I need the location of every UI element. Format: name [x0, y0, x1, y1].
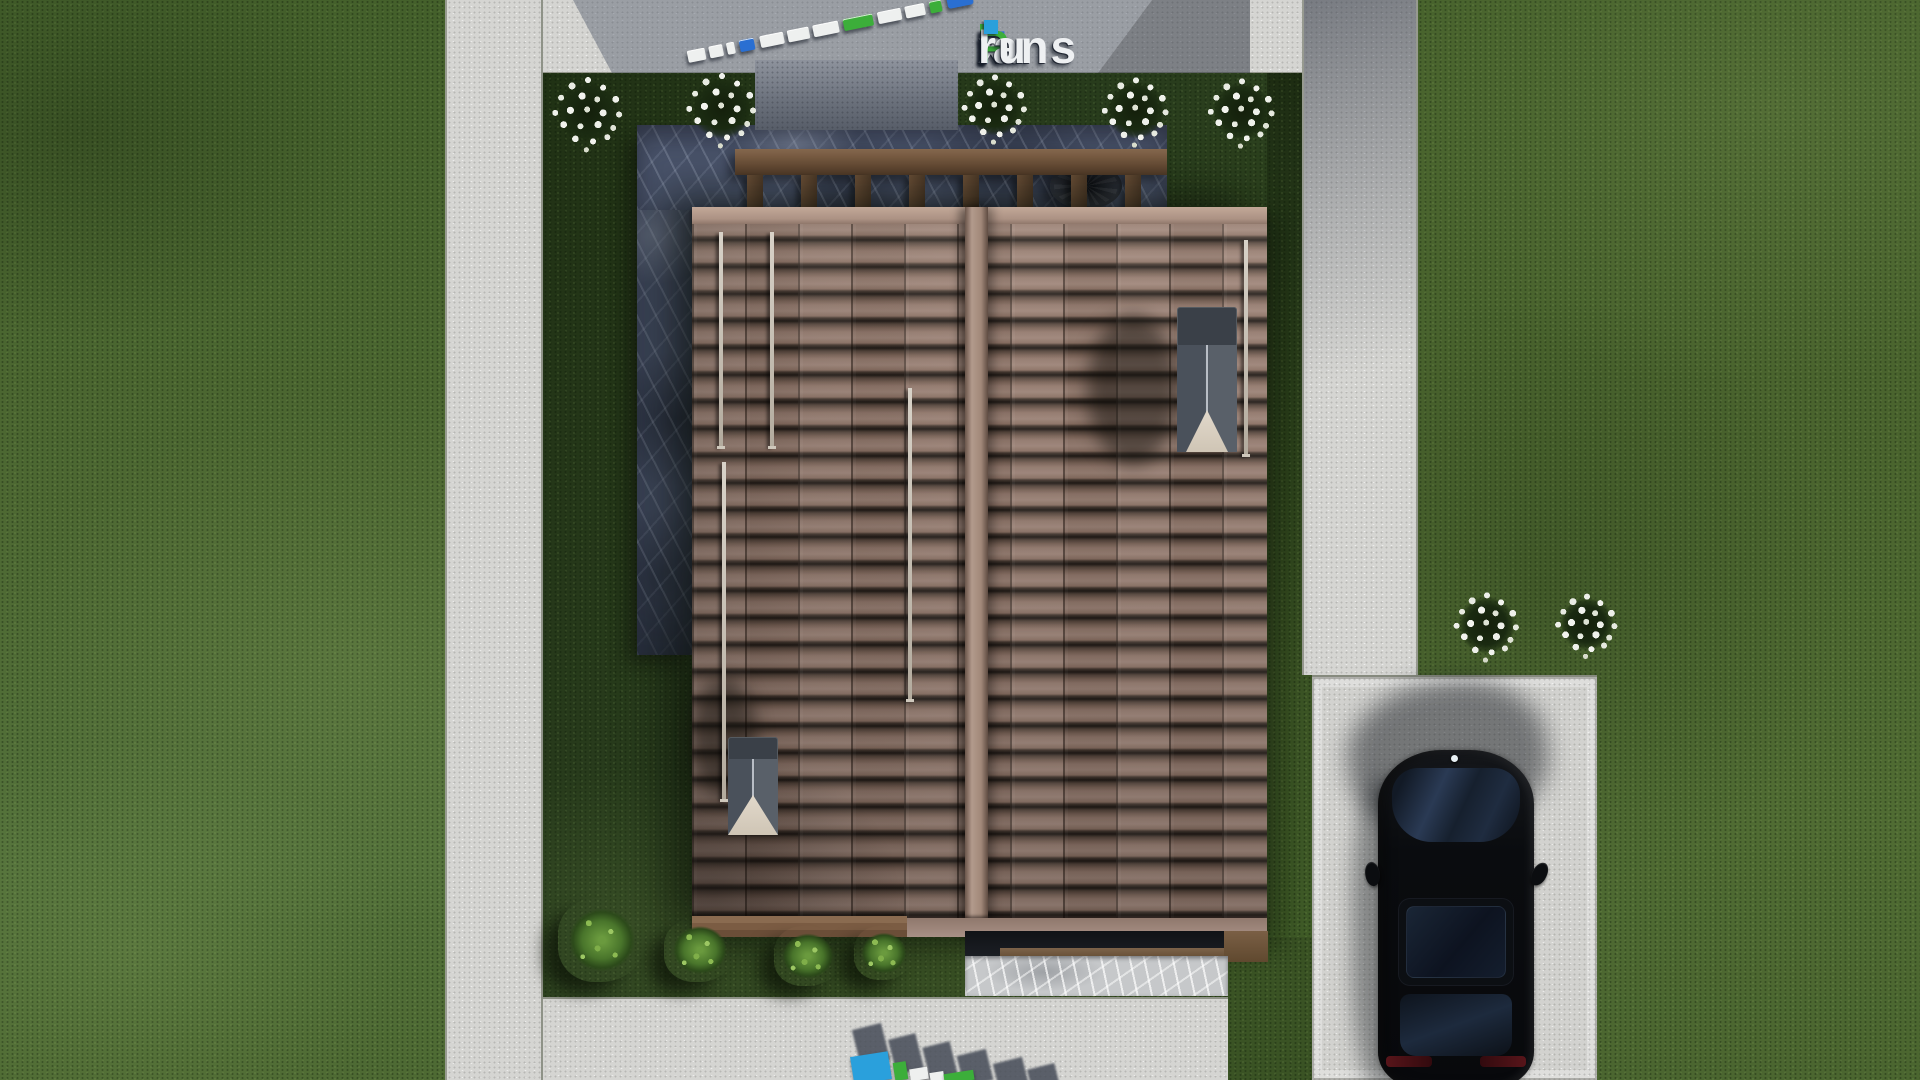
stone-terrace: [965, 956, 1228, 996]
watermark-dash: [687, 48, 707, 63]
pergola-beam: [735, 149, 1167, 175]
pergola-rafter: [855, 175, 871, 208]
pergola-rafter: [1071, 175, 1087, 208]
car-rear-window: [1400, 994, 1512, 1056]
watermark-dash-green: [893, 1061, 909, 1080]
watermark-cube-blue: [944, 0, 974, 9]
pergola-rafter: [1125, 175, 1141, 208]
watermark-dash-green: [929, 0, 943, 14]
pergola-rafter: [909, 175, 925, 208]
car-antenna: [1451, 755, 1458, 762]
watermark-dash: [877, 8, 903, 25]
watermark-shadow: [1027, 1063, 1061, 1080]
skylight-chimney-left: [728, 737, 778, 835]
watermark-3d-bottom: [846, 1024, 1066, 1080]
car-taillight-left: [1386, 1056, 1432, 1067]
roof-snow-rail: [770, 232, 774, 447]
entrance-slab: [755, 60, 958, 130]
watermark-dash: [726, 42, 736, 55]
flower-bush: [1096, 71, 1176, 149]
flower-bush: [956, 68, 1034, 146]
watermark-dash: [787, 26, 811, 42]
shrub: [854, 926, 914, 980]
shrub: [664, 918, 736, 982]
roof-snow-rail: [908, 388, 912, 700]
flower-bush: [1550, 588, 1624, 660]
path-east: [1302, 0, 1418, 675]
house-roof: [692, 207, 1267, 937]
skylight-chimney-right: [1177, 307, 1237, 452]
watermark-dash: [759, 32, 785, 49]
chimney-shadow: [1087, 315, 1179, 465]
roof-snow-rail: [719, 232, 723, 447]
aerial-site-render: FixPlans.ru: [0, 0, 1920, 1080]
deck-edge: [1224, 931, 1268, 962]
watermark-dash-green: [842, 13, 874, 31]
lawn-left: [0, 0, 445, 1080]
car-windshield: [1392, 768, 1520, 842]
watermark-dash: [708, 44, 724, 59]
shrub: [774, 926, 842, 986]
watermark-dash-blue: [739, 38, 756, 53]
pergola-rafter: [1017, 175, 1033, 208]
pergola-rafter: [801, 175, 817, 208]
flower-bush: [680, 66, 764, 150]
pergola-rafter: [747, 175, 763, 208]
flower-bush: [1448, 586, 1526, 664]
watermark-dash: [909, 1067, 929, 1080]
black-car: [1378, 750, 1534, 1080]
path-west: [445, 0, 543, 1080]
car-taillight-right: [1480, 1056, 1526, 1067]
roof-snow-rail: [1244, 240, 1248, 455]
flower-bush: [546, 70, 630, 154]
roof-snow-rail: [722, 462, 726, 800]
shrub: [558, 898, 646, 982]
watermark-cube-blue: [850, 1051, 892, 1080]
logo-tld-ru: ru: [978, 20, 1028, 74]
roof-ridge-center: [965, 207, 988, 937]
pergola-rafter: [963, 175, 979, 208]
watermark-shadow: [993, 1057, 1029, 1080]
watermark-dash: [904, 3, 926, 19]
flower-bush: [1202, 72, 1282, 150]
car-sunroof: [1406, 906, 1506, 978]
watermark-dash: [812, 20, 840, 37]
watermark-dash: [929, 1071, 944, 1080]
car-roof: [1398, 898, 1514, 986]
